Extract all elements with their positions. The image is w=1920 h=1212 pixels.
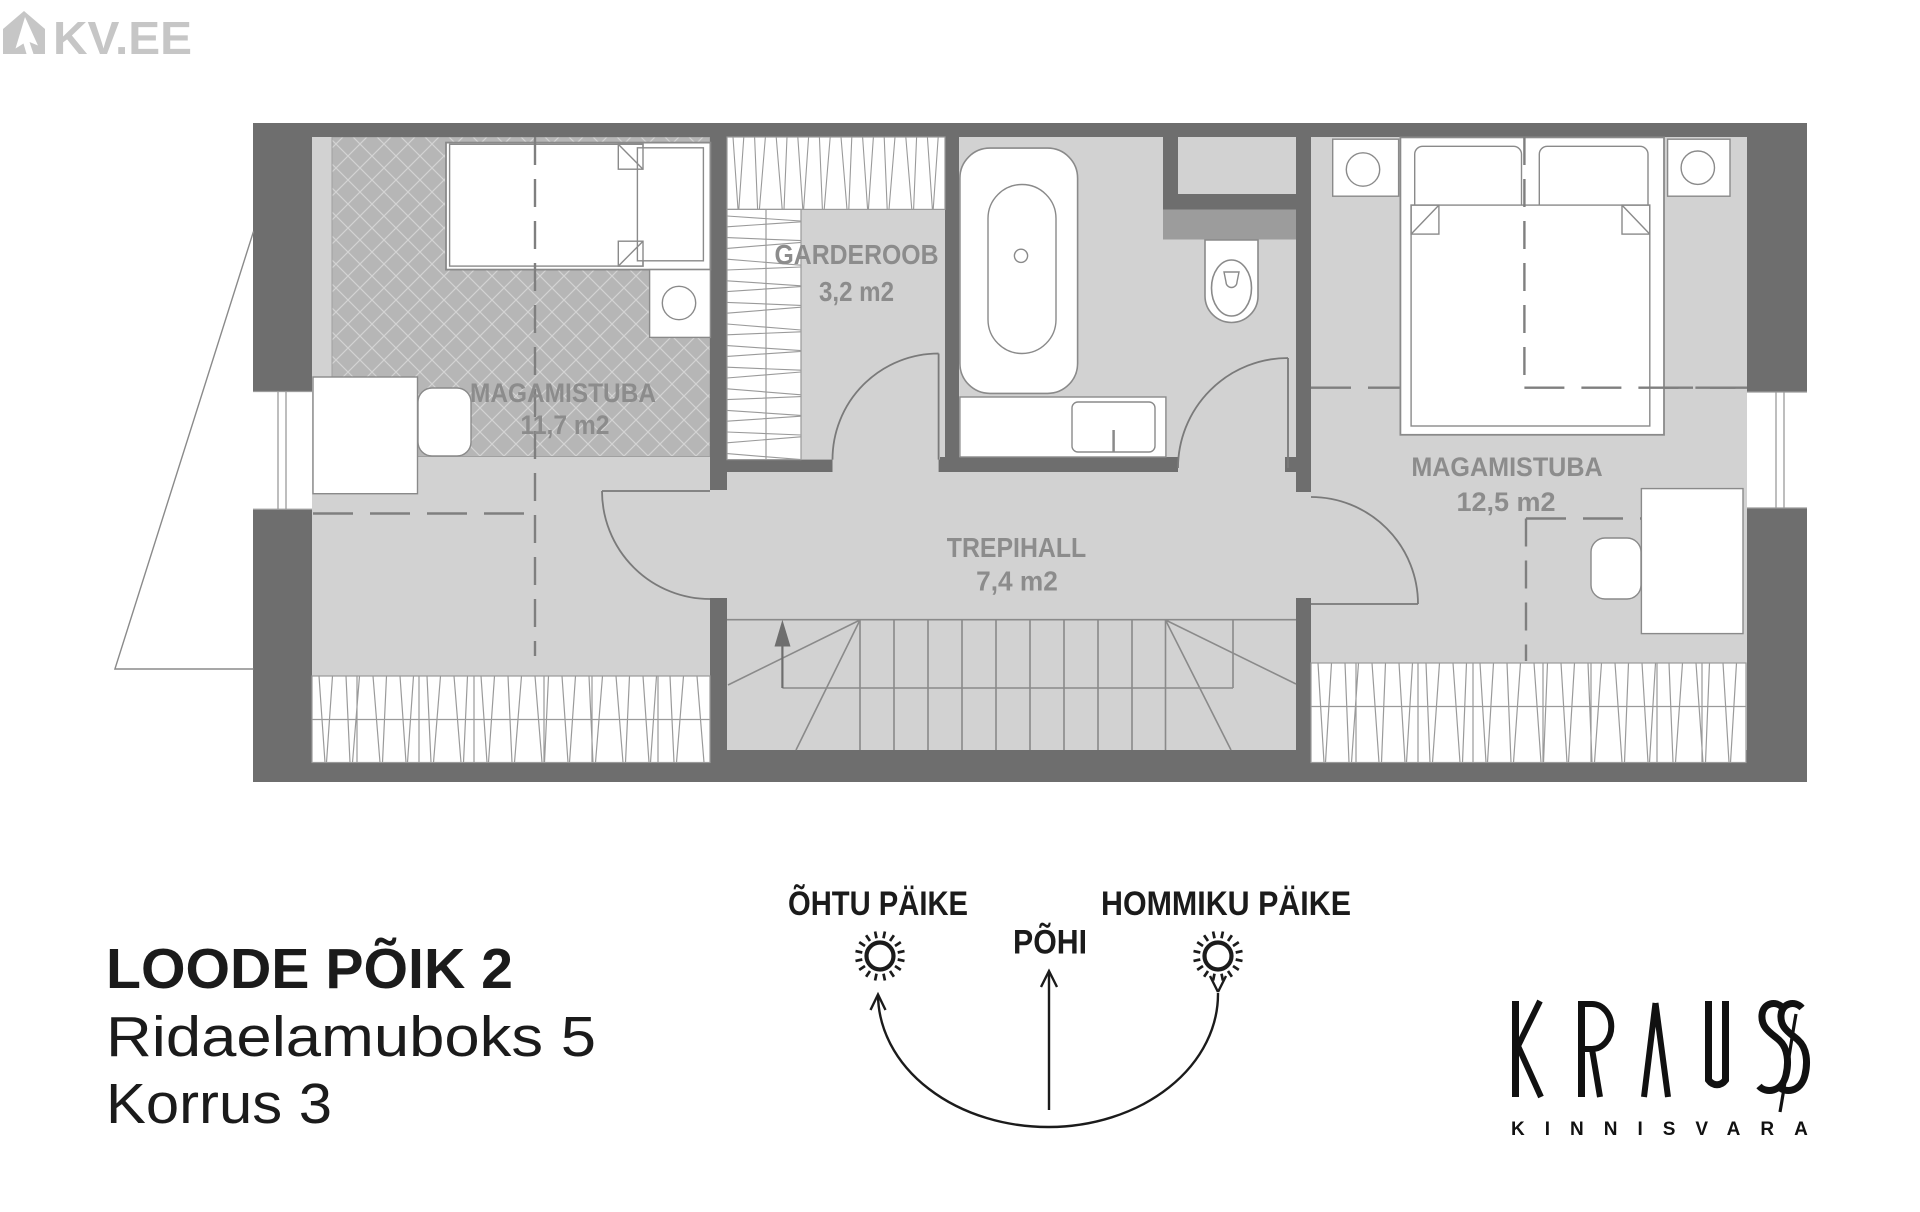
svg-text:KINNISVARA: KINNISVARA	[1511, 1119, 1828, 1140]
svg-text:12,5 m2: 12,5 m2	[1457, 487, 1556, 517]
svg-text:PÕHI: PÕHI	[1013, 924, 1087, 962]
svg-text:Ridaelamuboks 5: Ridaelamuboks 5	[106, 1005, 596, 1069]
svg-text:KV.EE: KV.EE	[53, 12, 192, 64]
svg-text:11,7 m2: 11,7 m2	[521, 410, 610, 440]
svg-text:TREPIHALL: TREPIHALL	[947, 532, 1086, 563]
svg-text:LOODE PÕIK 2: LOODE PÕIK 2	[106, 937, 513, 1001]
svg-text:3,2 m2: 3,2 m2	[819, 276, 894, 307]
svg-text:MAGAMISTUBA: MAGAMISTUBA	[470, 378, 656, 408]
svg-text:HOMMIKU PÄIKE: HOMMIKU PÄIKE	[1101, 885, 1351, 923]
svg-text:MAGAMISTUBA: MAGAMISTUBA	[1411, 452, 1602, 482]
svg-text:ÕHTU PÄIKE: ÕHTU PÄIKE	[788, 885, 968, 923]
svg-text:Korrus 3: Korrus 3	[106, 1072, 332, 1136]
svg-text:GARDEROOB: GARDEROOB	[775, 239, 939, 270]
svg-text:7,4 m2: 7,4 m2	[976, 566, 1058, 597]
